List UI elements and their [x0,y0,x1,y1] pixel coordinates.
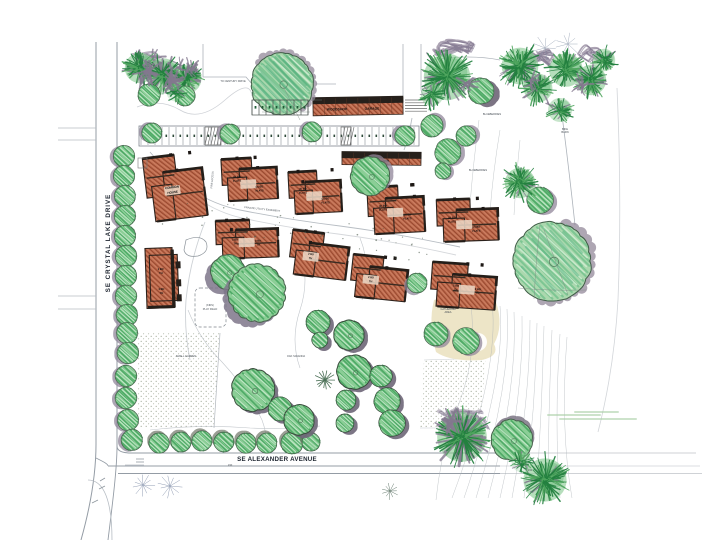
svg-text:(2) BD: (2) BD [299,186,307,190]
svg-text:BLUEBERRIES: BLUEBERRIES [483,112,501,116]
svg-text:3 BD: 3 BD [158,287,164,291]
svg-text:FLATS: FLATS [403,216,412,220]
svg-text:3 BD: 3 BD [158,267,164,271]
svg-text:230: 230 [528,468,533,472]
svg-text:TH: TH [256,243,260,247]
svg-text:FLATS: FLATS [321,200,330,204]
svg-text:FLATS: FLATS [472,229,481,233]
svg-text:FLATS: FLATS [299,190,308,194]
svg-text:(2) BD: (2) BD [472,225,480,229]
svg-text:2 BD: 2 BD [255,239,261,243]
svg-text:2 BD: 2 BD [453,283,459,287]
svg-text:(2) BD: (2) BD [403,212,411,216]
svg-text:2 BD: 2 BD [232,237,238,241]
svg-text:TH: TH [159,271,163,275]
svg-text:230: 230 [228,463,233,467]
svg-text:TH: TH [454,287,458,291]
svg-text:FLATS: FLATS [379,207,388,211]
svg-text:SE ALEXANDER AVENUE: SE ALEXANDER AVENUE [237,456,317,463]
svg-text:(KIDS): (KIDS) [206,303,214,307]
svg-text:2 BD: 2 BD [368,275,374,280]
svg-text:(2) BD: (2) BD [379,203,387,207]
svg-text:TH: TH [309,256,313,260]
svg-text:FLATS: FLATS [255,188,264,192]
svg-text:SMALL GARDEN: SMALL GARDEN [176,354,196,358]
svg-text:TO CENTURY DRIVE: TO CENTURY DRIVE [220,79,246,83]
svg-text:(2) BD: (2) BD [448,215,456,219]
svg-text:FLATS: FLATS [448,219,457,223]
svg-text:2 BD: 2 BD [475,287,481,291]
svg-text:(2) BD: (2) BD [233,174,241,178]
svg-text:BARN: BARN [561,130,568,134]
svg-text:GARAGE: GARAGE [365,107,381,111]
svg-text:(2) BD: (2) BD [321,196,329,200]
svg-text:TH: TH [160,291,164,295]
svg-text:PLAY FIELD: PLAY FIELD [203,307,218,311]
svg-text:FLATS: FLATS [233,178,242,182]
svg-text:2 BD: 2 BD [308,252,314,257]
svg-text:TH: TH [233,241,237,245]
svg-text:(2) BD: (2) BD [255,184,263,188]
svg-text:BLUEBERRIES: BLUEBERRIES [469,168,487,172]
svg-text:WOODSHOP: WOODSHOP [327,107,348,111]
svg-text:TH: TH [476,291,480,295]
svg-text:SE CRYSTAL LAKE DRIVE: SE CRYSTAL LAKE DRIVE [105,194,112,293]
svg-text:TH: TH [369,279,373,283]
svg-text:OAK SAVANNA: OAK SAVANNA [287,354,305,358]
svg-text:AREA: AREA [444,310,451,314]
